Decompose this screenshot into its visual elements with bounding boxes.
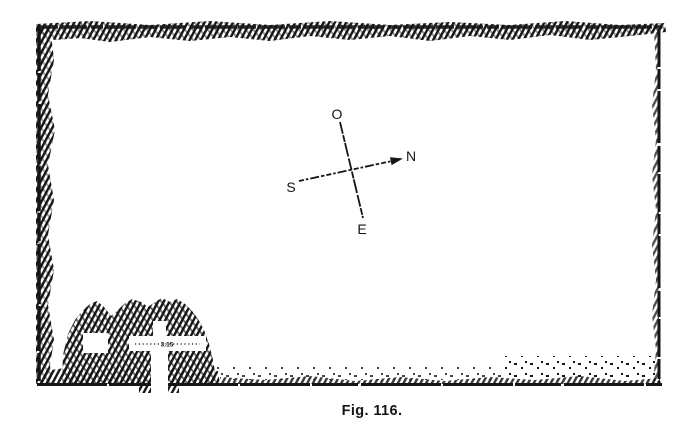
frame-left-edge [36, 24, 55, 384]
plan-entrance-passage [151, 351, 168, 393]
plan-drawing: 3.15 O N S E [0, 0, 700, 445]
compass-label-n: N [406, 148, 416, 164]
entrance-wall-left [139, 384, 151, 393]
plan-chamber [83, 333, 108, 353]
compass-rose: O N S E [286, 106, 416, 237]
compass-label-o: O [332, 106, 343, 122]
figure-116-scanned-plan: 3.15 O N S E Fig. 116. [0, 0, 700, 445]
entrance-wall-right [168, 384, 179, 393]
compass-label-s: S [286, 179, 295, 195]
compass-label-e: E [357, 221, 366, 237]
frame-right-edge [652, 29, 659, 384]
north-arrow-icon [390, 157, 403, 165]
figure-caption: Fig. 116. [44, 403, 700, 419]
plan-side-recess [153, 321, 166, 337]
compass-axis-s-n [299, 161, 392, 181]
gallery-measure-label: 3.15 [161, 342, 174, 349]
tumulus-structure: 3.15 [62, 298, 216, 393]
frame-top-edge [37, 21, 666, 42]
